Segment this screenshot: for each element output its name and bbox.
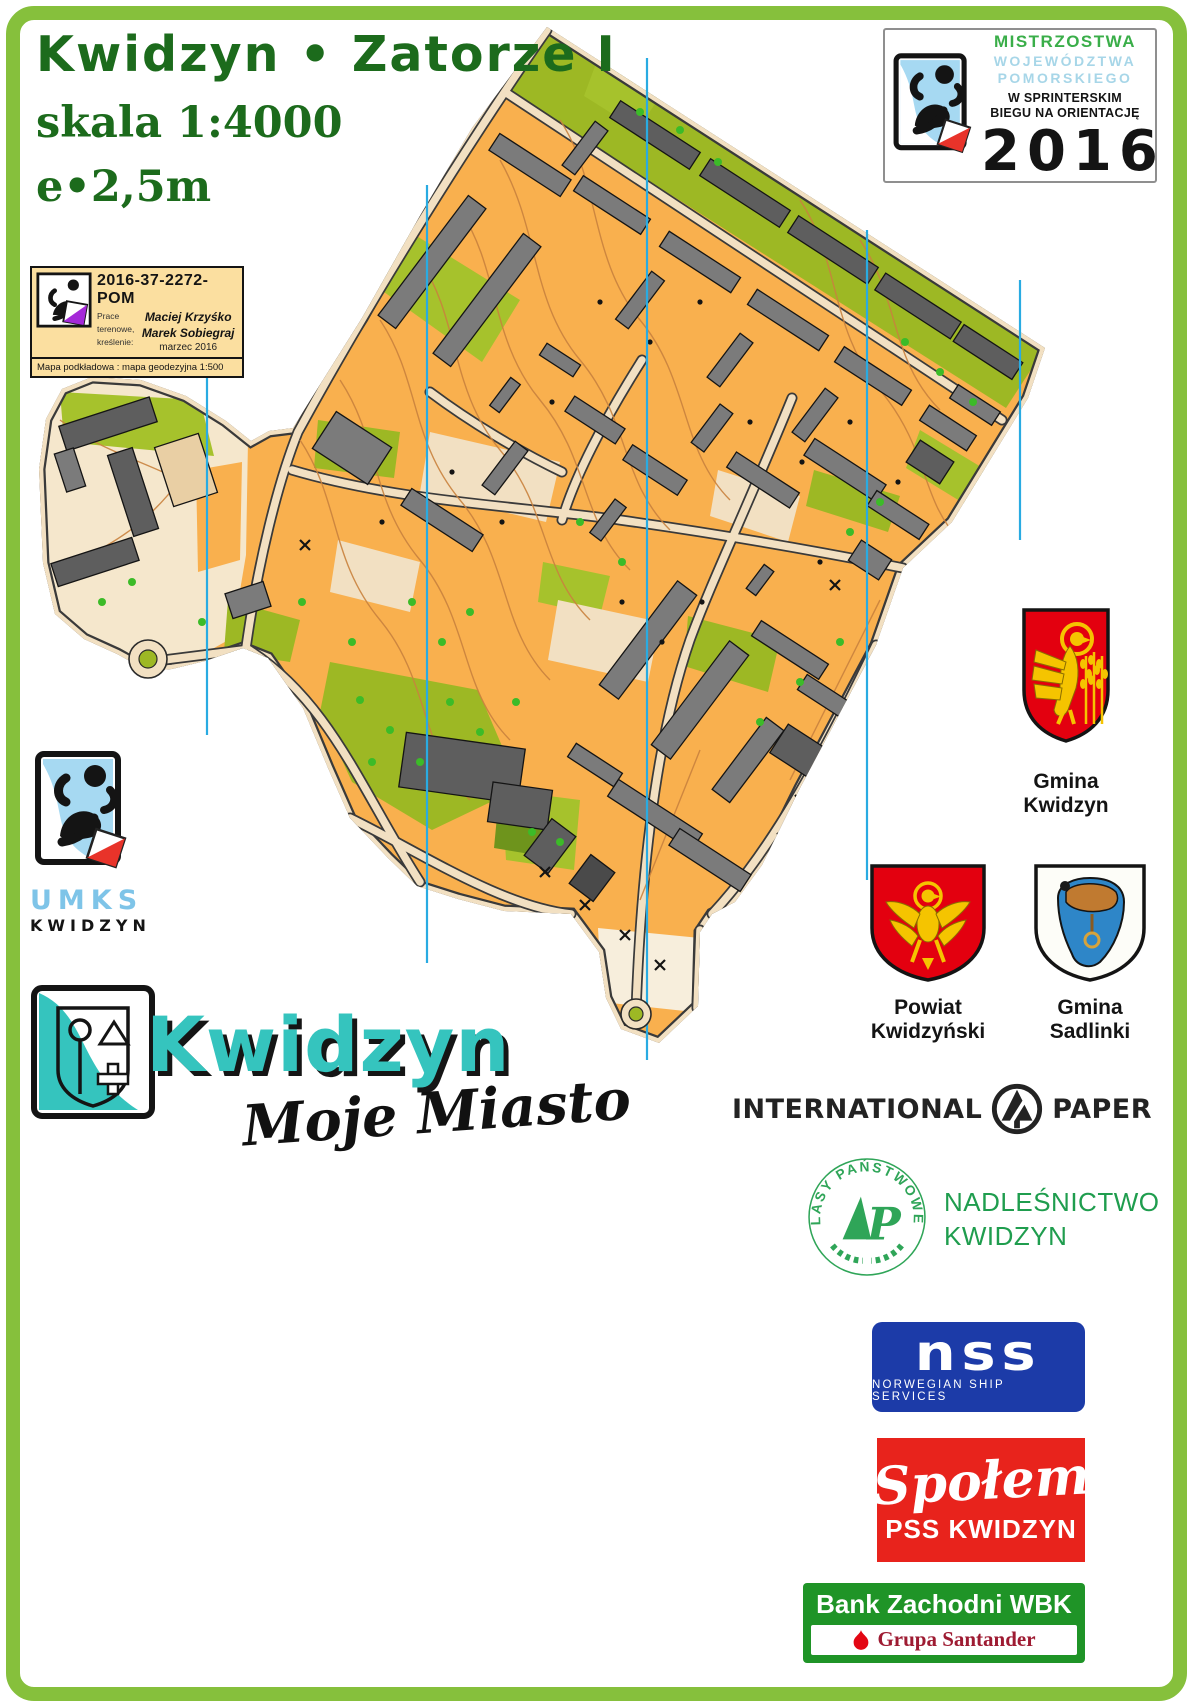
city-crest-icon (28, 982, 163, 1127)
badge-line1: MISTRZOSTWA (981, 31, 1149, 52)
spolem-script: Społem (871, 1450, 1090, 1513)
reg-label-2: terenowe, (97, 323, 134, 336)
international-paper-logo: INTERNATIONAL PAPER (712, 1082, 1172, 1136)
coat-of-arms-powiat-kwidzynski: Powiat Kwidzyński (866, 862, 990, 1044)
badge-line2: WOJEWÓDZTWA (981, 53, 1149, 71)
nadlesnictwo-line1: NADLEŚNICTWO (944, 1186, 1159, 1220)
spolem-logo: Społem PSS KWIDZYN (877, 1438, 1085, 1562)
coat-of-arms-gmina-kwidzyn: Gmina Kwidzyn (1016, 606, 1116, 818)
fieldwork-author-1: Maciej Krzyśko (138, 310, 238, 326)
coat-of-arms-gmina-sadlinki: Gmina Sadlinki (1030, 862, 1150, 1044)
bank-group: Grupa Santander (877, 1627, 1035, 1652)
ip-word-paper: PAPER (1052, 1094, 1152, 1125)
fieldwork-author-2: Marek Sobiegraj (138, 326, 238, 342)
nadlesnictwo-label: NADLEŚNICTWO KWIDZYN (944, 1186, 1159, 1254)
international-paper-tree-icon (990, 1082, 1044, 1136)
base-map-value: mapa geodezyjna 1:500 (122, 362, 223, 373)
nss-name: nss (915, 1331, 1042, 1376)
registration-code: 2016-37-2272-POM (97, 272, 238, 308)
gmina-kwidzyn-shield-icon (1019, 606, 1113, 746)
badge-line3: POMORSKIEGO (981, 70, 1149, 88)
reg-label-1: Prace (97, 310, 134, 323)
gmina-sadlinki-shield-icon (1032, 862, 1148, 984)
base-map-label: Mapa podkładowa : (37, 362, 119, 373)
santander-flame-icon (852, 1629, 870, 1651)
bank-logo: Bank Zachodni WBK Grupa Santander (803, 1583, 1085, 1663)
bank-name: Bank Zachodni WBK (811, 1588, 1077, 1622)
map-scale: skala 1:4000 (36, 98, 343, 148)
powiat-label-2: Kwidzyński (871, 1020, 985, 1044)
nadlesnictwo-line2: KWIDZYN (944, 1220, 1159, 1254)
contour-interval: e•2,5m (36, 162, 211, 212)
championship-badge: MISTRZOSTWA WOJEWÓDZTWA POMORSKIEGO W SP… (883, 28, 1157, 183)
gmina-kwidzyn-label-2: Kwidzyn (1023, 794, 1108, 818)
gmina-kwidzyn-label-1: Gmina (1023, 770, 1108, 794)
registration-runner-icon (36, 272, 92, 328)
umks-name: UMKS (30, 885, 150, 916)
spolem-subtitle: PSS KWIDZYN (885, 1514, 1077, 1545)
sadlinki-label-2: Sadlinki (1050, 1020, 1131, 1044)
nss-logo: nss NORWEGIAN SHIP SERVICES (872, 1322, 1085, 1412)
map-title: Kwidzyn • Zatorze I (36, 26, 617, 83)
umks-runner-icon (30, 748, 134, 878)
powiat-label-1: Powiat (871, 996, 985, 1020)
registration-card: 2016-37-2272-POM Prace terenowe, kreślen… (30, 266, 244, 378)
ip-word-international: INTERNATIONAL (732, 1094, 982, 1125)
nss-subtitle: NORWEGIAN SHIP SERVICES (872, 1379, 1085, 1403)
badge-line4: W SPRINTERSKIM (981, 91, 1149, 107)
svg-text:P: P (865, 1197, 902, 1250)
city-logo-name: Kwidzyn (146, 1000, 510, 1089)
reg-label-3: kreślenie: (97, 336, 134, 349)
sadlinki-label-1: Gmina (1050, 996, 1131, 1020)
badge-year: 2016 (981, 124, 1149, 180)
map-date: marzec 2016 (138, 342, 238, 353)
lasy-panstwowe-stamp-icon: LASY PAŃSTWOWE P (806, 1156, 928, 1278)
orienteering-runner-icon (891, 46, 976, 166)
umks-club-logo: UMKS KWIDZYN (30, 748, 150, 935)
umks-city: KWIDZYN (30, 916, 150, 935)
powiat-kwidzynski-shield-icon (868, 862, 988, 984)
